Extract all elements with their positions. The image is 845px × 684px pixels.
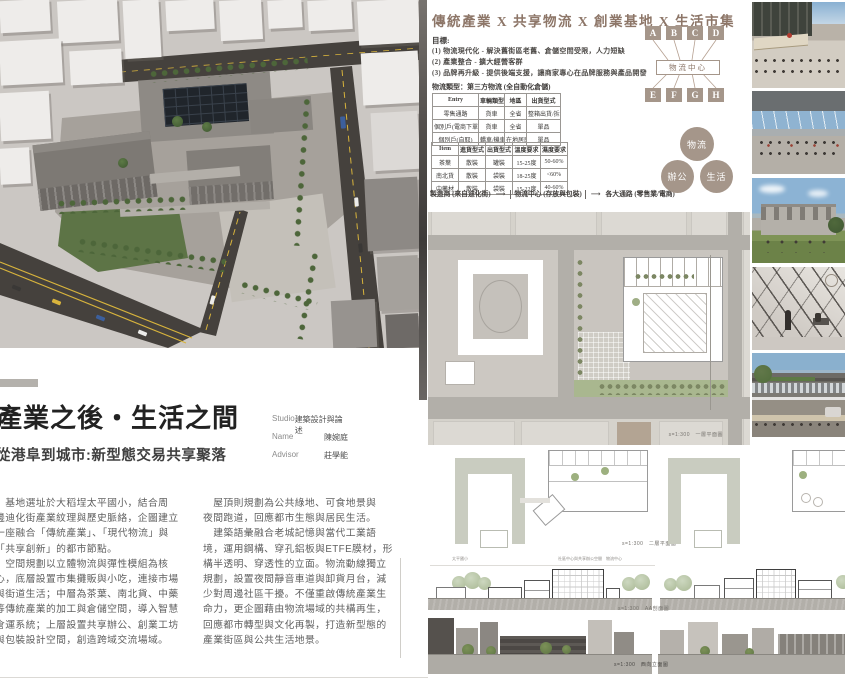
context-building — [0, 147, 31, 185]
crowd-dots — [752, 55, 845, 81]
ground-band — [660, 598, 845, 610]
car — [354, 197, 359, 206]
text-line: 規劃，設置夜間靜音車道與卸貨月台，減 — [203, 572, 393, 587]
text-line: 命力，更企圖藉由物流場域的共構再生， — [203, 602, 393, 617]
text-line: 構半透明、穿透性的立面。物流動線獨立 — [203, 557, 393, 572]
people-on-lawn — [761, 236, 835, 253]
body-text-right: 屋頂則規劃為公共綠地、可食地景與 夜間跑道，回應都市生態與居民生活。 建築語彙融… — [203, 496, 393, 648]
crowd-dots — [757, 137, 841, 160]
second-floor-plan — [548, 450, 648, 512]
col-header: Entry — [433, 94, 479, 107]
col-header: 車輛類型 — [479, 94, 505, 107]
goal-item: (1) 物流現代化 - 解決舊街區老舊、倉儲空間受限，人力短缺 — [432, 46, 625, 56]
credit-row: Studio 建築設計與論述 — [272, 414, 348, 432]
program-circle-living: 生活 — [700, 160, 733, 193]
context-building — [69, 49, 123, 86]
cell: 罐裝 — [486, 156, 513, 169]
elevation-building — [614, 632, 634, 656]
elevation-building — [588, 620, 612, 656]
aerial-site-render — [0, 0, 419, 348]
cell: 50-60% — [541, 156, 568, 169]
city-block — [692, 212, 726, 235]
context-building — [165, 0, 215, 31]
section-warehouse — [552, 569, 604, 600]
school-annex-outline — [480, 530, 508, 548]
text-line: 一座融合「傳統產業」、「現代物流」與 — [0, 526, 179, 541]
cell: 茶葉 — [432, 156, 459, 169]
render-photo-atrium — [752, 267, 845, 350]
context-building — [371, 111, 419, 171]
network-node: A — [645, 26, 661, 40]
logo-mark — [825, 274, 838, 287]
elevation-building — [428, 618, 454, 656]
text-line: 心，底層設置市集攤販與小吃，連接市場 — [0, 572, 179, 587]
section-tree — [664, 578, 677, 591]
supply-chain-flow: 製造商 (來自迪化街)⟶物流中心 (存放與包裝)⟶各大通路 (零售業/電商) — [430, 188, 675, 198]
context-building — [364, 177, 419, 252]
context-building — [123, 0, 162, 59]
section-annotation: 物流中心 — [606, 556, 622, 562]
render-photo-terrace — [752, 353, 845, 437]
context-building — [331, 299, 377, 348]
text-line: 夜間跑道，回應都市生態與居民生活。 — [203, 511, 393, 526]
credit-row: Advisor 莊學能 — [272, 450, 348, 468]
credit-label: Advisor — [272, 450, 299, 468]
flow-to: 各大通路 (零售業/電商) — [606, 191, 675, 198]
city-block — [434, 422, 514, 445]
city-block — [432, 212, 510, 235]
render-edge-shadow — [419, 0, 427, 400]
network-node: B — [666, 26, 682, 40]
plan-line — [549, 481, 647, 482]
drawing-label: s=1:300 西向立面圖 — [614, 661, 668, 668]
col-header: 地區 — [505, 94, 527, 107]
footer-rule — [0, 677, 428, 678]
text-line: 基地選址於大稻埕太平國小，結合周 — [0, 496, 179, 511]
section-building — [724, 578, 754, 599]
plan-line — [549, 465, 647, 466]
cell: 南北貨 — [432, 169, 459, 182]
text-line: 邊迪化街產業紋理與歷史脈絡，企圖建立 — [0, 511, 179, 526]
glass-facade — [752, 383, 845, 393]
cell: 個別戶(電商下單) — [433, 120, 479, 133]
text-line: 境，運用鋼構、穿孔鋁板與ETFE膜材，形 — [203, 542, 393, 557]
market-canopy — [754, 34, 808, 51]
building-mass — [752, 2, 812, 36]
text-line: 與包裝設計空間，創造跨域交流場域。 — [0, 633, 179, 648]
text-line: 與街道生活；中層為茶葉、南北貨、中藥 — [0, 587, 179, 602]
school-courtyard — [473, 274, 528, 339]
network-node: C — [687, 26, 703, 40]
table-row: 零售通路 貨車 全省 整箱出貨/拆箱出貨 — [433, 107, 561, 120]
tree — [172, 116, 183, 127]
section-tree — [634, 574, 650, 590]
arrow-icon: ⟶ — [591, 190, 601, 198]
text-line: 少對周邊社區干擾。不僅重啟傳統產業生 — [203, 587, 393, 602]
cell: 18-25度 — [513, 169, 541, 182]
section-annotation: 太平國小 — [452, 556, 468, 562]
goal-item: (3) 品牌再升級 - 提供後端支援，讓商家專心在品牌服務與產品開發 — [432, 68, 647, 78]
cell: 貨車 — [479, 120, 505, 133]
cloud — [759, 185, 785, 193]
cell: 15-25度 — [513, 156, 541, 169]
bridge-link — [520, 498, 550, 503]
elevation-tree — [540, 642, 552, 654]
text-line: 產業街區與公共生活地景。 — [203, 633, 393, 648]
structure-lines — [752, 111, 845, 129]
elevation-building — [752, 628, 774, 656]
col-header: Item — [432, 143, 459, 156]
logistics-entry-table: Entry 車輛類型 地區 出貨型式 零售通路 貨車 全省 整箱出貨/拆箱出貨 … — [432, 93, 561, 146]
car — [358, 243, 363, 252]
context-building — [361, 51, 419, 106]
network-node: D — [708, 26, 724, 40]
courtyard-tree — [571, 473, 579, 481]
cell: 單品 — [527, 120, 561, 133]
truck — [825, 407, 841, 417]
road-south — [428, 397, 750, 419]
flow-from: 製造商 (來自迪化街) — [430, 191, 491, 198]
section-annotation: 社區中心與共享辦公空間 — [558, 556, 602, 562]
cloud — [808, 190, 828, 197]
street-trees — [575, 257, 586, 377]
tree — [202, 122, 212, 132]
window-grid — [761, 207, 835, 220]
floor-line — [799, 589, 831, 590]
floor-line — [725, 588, 753, 589]
street-trees — [598, 382, 726, 395]
sky — [812, 2, 845, 24]
text-line: 建築語彙融合老城記憶與當代工業語 — [203, 526, 393, 541]
section-building — [524, 580, 550, 600]
arrow-icon: ⟶ — [496, 190, 506, 198]
network-node: E — [645, 88, 661, 102]
context-building — [57, 0, 119, 44]
ground-band — [658, 654, 845, 674]
context-building — [357, 0, 419, 46]
third-floor-plan — [792, 450, 845, 512]
section-tree — [676, 575, 692, 591]
context-building — [377, 255, 419, 311]
plan-circle — [813, 497, 823, 507]
body-text-left: 基地選址於大稻埕太平國小，結合周 邊迪化街產業紋理與歷史脈絡，企圖建立 一座融合… — [0, 496, 179, 648]
col-header: 進貨型式 — [459, 143, 486, 156]
credit-value: 莊學能 — [324, 450, 348, 468]
cell: 零售通路 — [433, 107, 479, 120]
section-building — [798, 580, 832, 599]
drawing-label: s=1:300 一層平面圖 — [669, 431, 723, 438]
network-node: G — [687, 88, 703, 102]
table-header-row: Item 進貨型式 出貨型式 溫度要求 濕度要求 — [432, 143, 568, 156]
flow-hub: 物流中心 (存放與包裝) — [510, 190, 585, 199]
context-building — [0, 0, 51, 33]
render-photo-canopy-plaza — [752, 91, 845, 174]
credit-label: Name — [272, 432, 293, 450]
room-partition-band — [549, 451, 647, 465]
col-header: 溫度要求 — [513, 143, 541, 156]
program-circle-logistics: 物流 — [680, 127, 714, 161]
context-building — [0, 38, 63, 85]
crowd-dots — [752, 419, 845, 434]
network-node: H — [708, 88, 724, 102]
context-building — [385, 313, 419, 348]
page-title: 產業之後・生活之間 — [0, 398, 239, 435]
program-circle-office: 辦公 — [661, 160, 694, 193]
cell: 整箱出貨/拆箱出貨 — [527, 107, 561, 120]
road-north — [428, 235, 750, 250]
railing — [752, 397, 845, 400]
city-block — [602, 212, 686, 235]
courtyard-tree — [632, 298, 640, 306]
text-line: 回應都市轉型與文化再製，打造新型態的 — [203, 618, 393, 633]
credit-row: Name 陳婉庭 — [272, 432, 348, 450]
tree — [754, 365, 772, 383]
credit-value: 陳婉庭 — [324, 432, 348, 450]
page-subtitle: 從港阜到城市:新型態交易共享聚落 — [0, 444, 226, 465]
elevation-tree — [562, 645, 571, 654]
text-line: 「共享創新」的都市節點。 — [0, 542, 179, 557]
context-building — [307, 0, 353, 31]
render-photo-lawn-building — [752, 178, 845, 263]
cell: 全省 — [505, 107, 527, 120]
elevation-building — [660, 630, 684, 656]
col-header: 出貨型式 — [527, 94, 561, 107]
drawing-label: s=1:300 AA剖面圖 — [618, 605, 669, 612]
distribution-network-diagram: A B C D 物流中心 E F G H — [640, 26, 736, 104]
credit-value: 建築設計與論述 — [295, 414, 348, 432]
city-block-brown — [617, 422, 651, 445]
school-annex — [446, 362, 474, 384]
cell: 散裝 — [459, 169, 486, 182]
table-row: 茶葉 散裝 罐裝 15-25度 50-60% — [432, 156, 568, 169]
courtyard-tree — [799, 471, 807, 479]
figure — [785, 310, 791, 330]
project-elevation — [778, 634, 845, 656]
plan-line — [793, 465, 845, 466]
context-building — [219, 0, 263, 41]
city-block — [522, 422, 608, 445]
section-building — [694, 585, 720, 599]
table-row: 個別戶(電商下單) 貨車 全省 單品 — [433, 120, 561, 133]
annotation-rule — [430, 565, 655, 566]
lane-marking — [0, 268, 186, 343]
hall-hatch — [644, 294, 706, 352]
context-building — [267, 0, 302, 29]
running-track — [479, 280, 522, 333]
credit-label: Studio — [272, 414, 295, 432]
cell: 散裝 — [459, 156, 486, 169]
floor — [752, 337, 845, 350]
city-block — [516, 212, 596, 235]
credits-block: Studio 建築設計與論述 Name 陳婉庭 Advisor 莊學能 — [272, 414, 348, 468]
section-warehouse — [756, 569, 796, 599]
table-header-row: Entry 車輛類型 地區 出貨型式 — [433, 94, 561, 107]
floor-line — [525, 590, 549, 591]
section-cut-line — [710, 255, 711, 410]
render-photo-market-street — [752, 2, 845, 88]
first-floor-site-plan: s=1:300 一層平面圖 — [428, 212, 750, 445]
col-header: 濕度要求 — [541, 143, 568, 156]
tree — [828, 217, 844, 233]
column-divider — [400, 558, 401, 658]
school-annex-outline — [694, 530, 722, 548]
text-line: 等傳統產業的加工與倉儲空間，導入智慧 — [0, 602, 179, 617]
cell: 袋裝 — [486, 169, 513, 182]
truck — [340, 116, 346, 128]
goals-heading: 目標: — [432, 35, 450, 46]
court-trees — [634, 272, 694, 282]
col-header: 出貨型式 — [486, 143, 513, 156]
section-tree — [836, 575, 845, 589]
cell: 全省 — [505, 120, 527, 133]
context-building — [0, 91, 51, 142]
plan-circle — [801, 493, 811, 503]
network-hub: 物流中心 — [656, 60, 720, 75]
cell: <60% — [541, 169, 568, 182]
tree — [118, 158, 128, 168]
road-middle — [558, 250, 574, 397]
logistics-type-label: 物流類型：第三方物流 (全自動化倉儲) — [432, 82, 550, 92]
table-row: 南北貨 散裝 袋裝 18-25度 <60% — [432, 169, 568, 182]
text-line: 空間規劃以立體物流與彈性模組為核 — [0, 557, 179, 572]
building-mass — [761, 204, 835, 236]
courtyard-tree — [601, 467, 609, 475]
text-line: 倉運系統；上層設置共享辦公、創業工坊 — [0, 618, 179, 633]
school-building — [458, 260, 543, 355]
room-partition-band — [793, 451, 845, 465]
figure — [815, 313, 821, 322]
network-node: F — [666, 88, 682, 102]
goal-item: (2) 產業整合 - 擴大經營客群 — [432, 57, 523, 67]
poster-page: 傳統產業 X 共享物流 X 創業基地 X 生活市集 目標: (1) 物流現代化 … — [0, 0, 845, 684]
scale-bar — [0, 379, 38, 387]
cell: 貨車 — [479, 107, 505, 120]
text-line: 屋頂則規劃為公共綠地、可食地景與 — [203, 496, 393, 511]
